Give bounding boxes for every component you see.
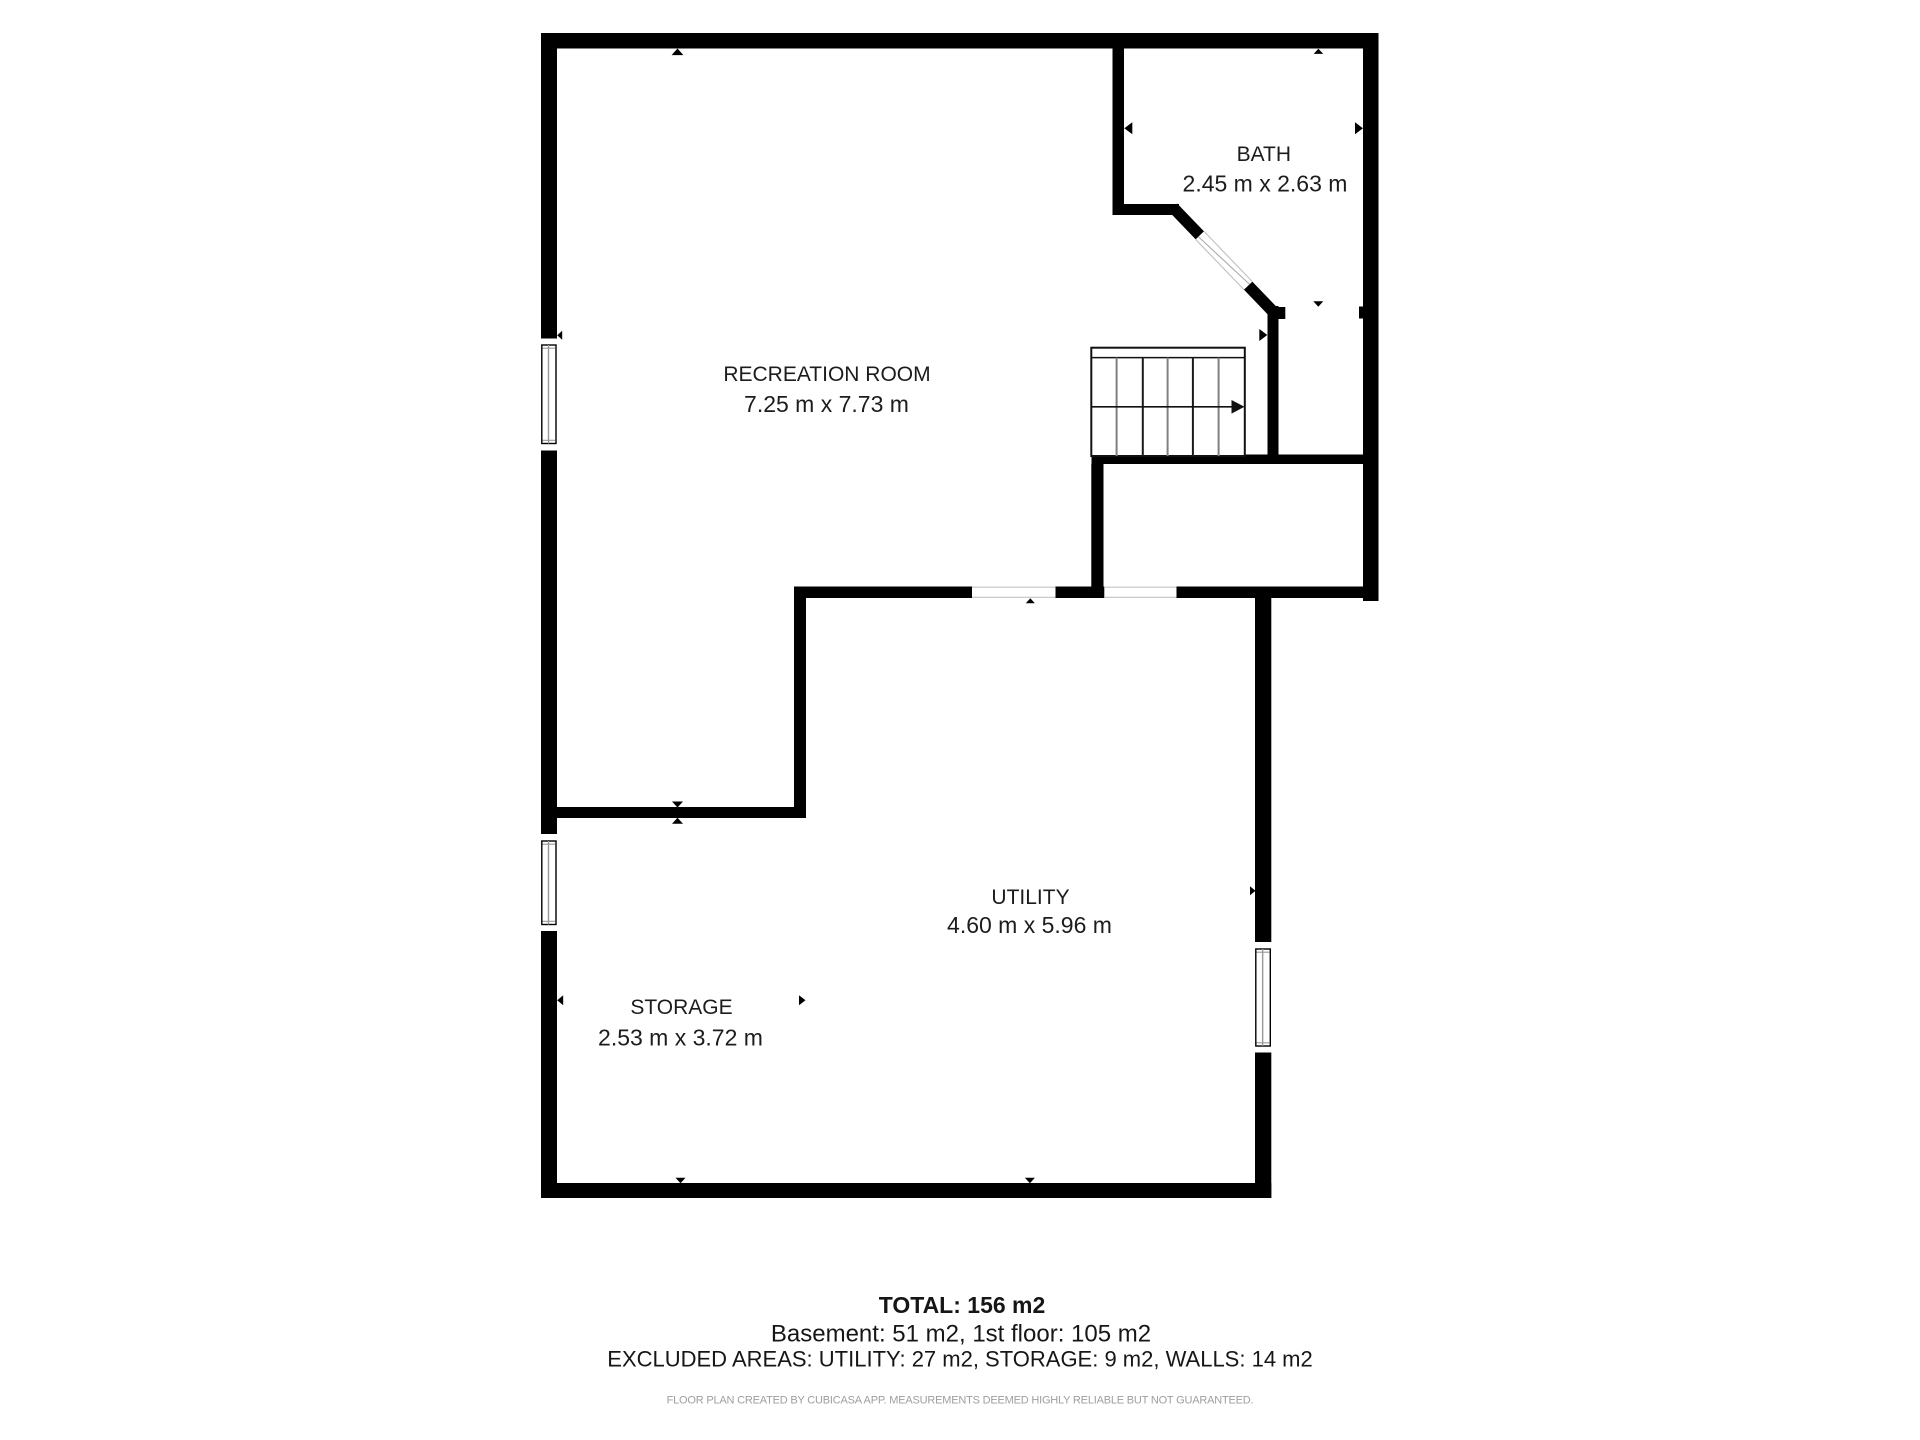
svg-text:4.60 m x 5.96 m: 4.60 m x 5.96 m — [947, 912, 1112, 938]
svg-text:UTILITY: UTILITY — [991, 886, 1069, 909]
svg-text:FLOOR PLAN CREATED BY CUBICASA: FLOOR PLAN CREATED BY CUBICASA APP. MEAS… — [667, 1395, 1254, 1407]
svg-text:Basement: 51 m2, 1st floor: 10: Basement: 51 m2, 1st floor: 105 m2 — [771, 1321, 1151, 1348]
svg-text:TOTAL: 156 m2: TOTAL: 156 m2 — [879, 1292, 1046, 1318]
svg-text:2.45 m x 2.63 m: 2.45 m x 2.63 m — [1183, 171, 1348, 197]
svg-text:STORAGE: STORAGE — [630, 996, 732, 1019]
svg-text:RECREATION ROOM: RECREATION ROOM — [723, 363, 930, 386]
svg-text:7.25 m x 7.73 m: 7.25 m x 7.73 m — [744, 391, 909, 417]
svg-text:BATH: BATH — [1237, 143, 1291, 166]
svg-text:EXCLUDED AREAS: UTILITY: 27 m2: EXCLUDED AREAS: UTILITY: 27 m2, STORAGE:… — [607, 1347, 1312, 1372]
svg-text:2.53 m x 3.72 m: 2.53 m x 3.72 m — [598, 1025, 763, 1051]
